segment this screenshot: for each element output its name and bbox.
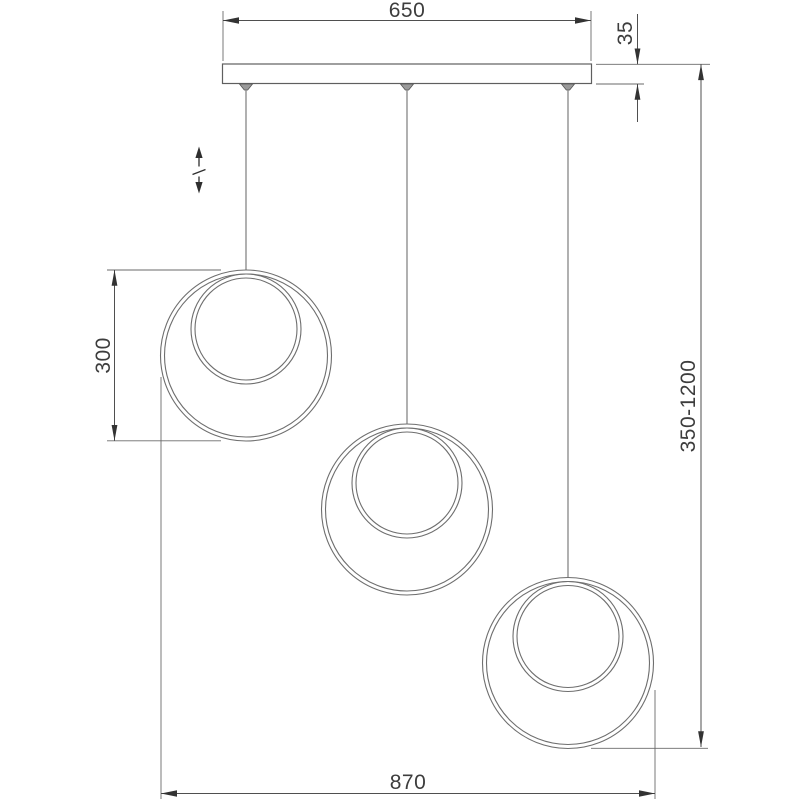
small-ring-inner [195,278,297,380]
adjustable-height-icon [193,147,206,194]
suspension-cables [246,90,568,578]
small-ring-outer [513,582,623,692]
small-ring-outer [352,428,462,538]
dimension-arrow-up [112,270,118,286]
dim-label-suspension-height: 350-1200 [677,360,700,453]
dim-label-ring-diameter: 300 [92,337,115,374]
canopy-bar [223,64,592,84]
small-ring-inner [517,586,619,688]
dim-label-canopy-width: 650 [389,0,426,22]
down-arrow-icon [195,182,202,194]
pendant-ring-top-left [161,270,332,441]
dimension-suspension-height: 350-1200 [591,64,708,748]
up-arrow-icon [195,147,202,159]
dimension-arrow-right [575,17,591,23]
small-ring-outer [191,274,301,384]
technical-drawing-canvas: 650 35 300 350-1200 870 [0,0,800,800]
dimension-arrow-right [639,790,655,796]
cable-cone-left [240,84,253,90]
pendant-ring-bottom-right [483,578,654,749]
dim-label-overall-width: 870 [390,771,427,794]
large-ring-outer [322,424,493,595]
dimension-canopy-width: 650 [223,0,591,61]
dimension-arrow-up [635,84,641,100]
large-ring-outer [483,578,654,749]
pendant-ring-middle [322,424,493,595]
ceiling-canopy [223,64,592,84]
large-ring-outer [161,270,332,441]
dimension-arrow-left [223,17,239,23]
dimension-arrow-down [635,49,641,65]
cable-cone-right [562,84,575,90]
dimension-canopy-thickness: 35 [596,14,710,122]
pendant-light-drawing: 650 35 300 350-1200 870 [0,0,800,800]
adjust-tick [193,170,206,175]
dimension-arrow-up [698,64,704,80]
dim-label-canopy-thickness: 35 [614,21,637,45]
dimension-arrow-left [161,790,177,796]
large-ring-inner [326,428,489,591]
large-ring-inner [487,582,650,745]
dimension-arrow-down [112,425,118,441]
dimension-arrow-down [698,731,704,747]
small-ring-inner [356,432,458,534]
cable-cone-center [401,84,414,90]
cable-mounts [240,84,575,90]
large-ring-inner [165,274,328,437]
